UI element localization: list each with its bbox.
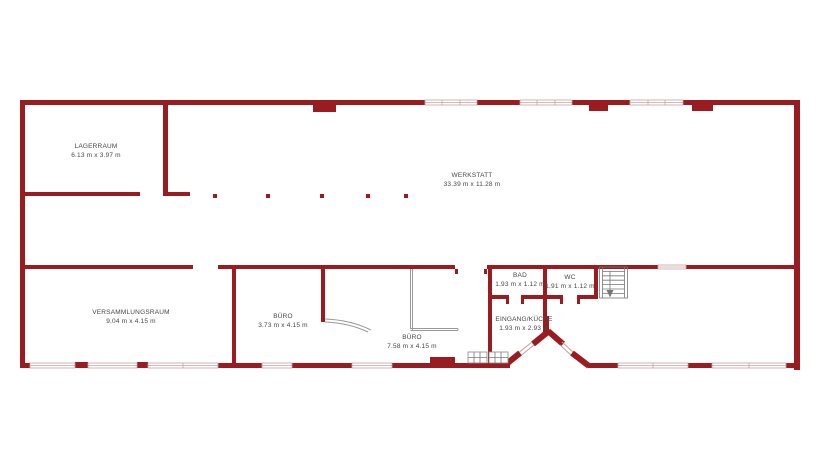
room-dimensions: 3.73 m x 4.15 m bbox=[258, 321, 308, 330]
door-arc bbox=[325, 319, 371, 332]
room-name: BÜRO bbox=[258, 312, 308, 321]
room-name: BÜRO bbox=[387, 333, 437, 342]
room-label-wc: WC 1.91 m x 1.12 m bbox=[545, 273, 595, 291]
room-name: VERSAMMLUNGSRAUM bbox=[92, 308, 170, 317]
room-label-buero-klein: BÜRO 3.73 m x 4.15 m bbox=[258, 312, 308, 330]
room-label-lagerraum: LAGERRAUM 6.13 m x 3.97 m bbox=[71, 142, 121, 160]
top-windows bbox=[425, 100, 683, 105]
room-dimensions: 1.93 m x 1.12 m bbox=[495, 280, 545, 289]
room-dimensions: 6.13 m x 3.97 m bbox=[71, 151, 121, 160]
room-name: WC bbox=[545, 273, 595, 282]
room-label-bad: BAD 1.93 m x 1.12 m bbox=[495, 271, 545, 289]
room-dimensions: 33.39 m x 11.28 m bbox=[444, 180, 501, 189]
room-label-buero-gross: BÜRO 7.58 m x 4.15 m bbox=[387, 333, 437, 351]
room-dimensions: 1.93 m x 2.93 m bbox=[495, 324, 552, 333]
outer-walls bbox=[20, 100, 800, 370]
room-label-eingang-kueche: EINGANG/KÜCHE 1.93 m x 2.93 m bbox=[495, 315, 552, 333]
room-name: WERKSTATT bbox=[444, 171, 501, 180]
floor-plan-drawing bbox=[0, 0, 820, 465]
room-dimensions: 1.91 m x 1.12 m bbox=[545, 282, 595, 291]
interior-walls bbox=[20, 100, 794, 368]
floor-plan-canvas: LAGERRAUM 6.13 m x 3.97 m WERKSTATT 33.3… bbox=[0, 0, 820, 465]
room-dimensions: 9.04 m x 4.15 m bbox=[92, 317, 170, 326]
room-name: EINGANG/KÜCHE bbox=[495, 315, 552, 324]
room-dimensions: 7.58 m x 4.15 m bbox=[387, 342, 437, 351]
room-name: BAD bbox=[495, 271, 545, 280]
room-label-versammlungsraum: VERSAMMLUNGSRAUM 9.04 m x 4.15 m bbox=[92, 308, 170, 326]
room-name: LAGERRAUM bbox=[71, 142, 121, 151]
room-label-werkstatt: WERKSTATT 33.39 m x 11.28 m bbox=[444, 171, 501, 189]
glass-partition bbox=[411, 269, 459, 331]
stairs-icon bbox=[600, 267, 628, 298]
